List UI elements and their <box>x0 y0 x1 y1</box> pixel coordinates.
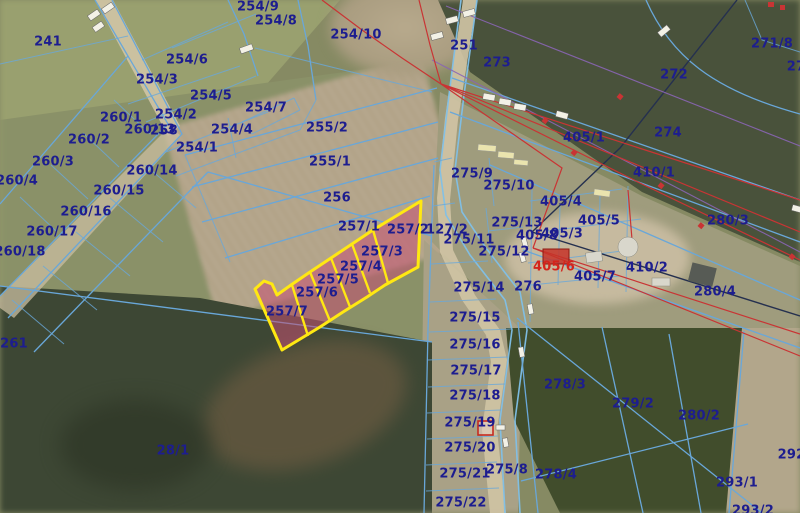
parcel-label-257-2: 257/2 <box>387 223 429 238</box>
parcel-label-280-2: 280/2 <box>678 409 720 424</box>
parcel-label-258: 258 <box>150 124 178 139</box>
parcel-label-279-2: 279/2 <box>612 397 654 412</box>
parcel-label-410-1: 410/1 <box>633 166 675 181</box>
parcel-label-254-3: 254/3 <box>136 73 178 88</box>
parcel-label-260-16: 260/16 <box>60 205 111 220</box>
parcel-label-275-15: 275/15 <box>449 311 500 326</box>
parcel-label-405-4: 405/4 <box>540 195 582 210</box>
parcel-label-254-6: 254/6 <box>166 53 208 68</box>
parcel-label-257-1: 257/1 <box>338 220 380 235</box>
parcel-label-275-12: 275/12 <box>478 245 529 260</box>
parcel-label-292-: 292/ <box>778 448 800 463</box>
parcel-label-254-8: 254/8 <box>255 14 297 29</box>
parcel-label-275-17: 275/17 <box>450 364 501 379</box>
parcel-label-275-20: 275/20 <box>444 441 495 456</box>
parcel-label-275-14: 275/14 <box>453 281 504 296</box>
parcel-label-275-22: 275/22 <box>435 496 486 511</box>
map-canvas[interactable]: 241254/9254/8254/10251273271/827272254/6… <box>0 0 800 513</box>
parcel-label-275-8: 275/8 <box>486 463 528 478</box>
parcel-label-278-3: 278/3 <box>544 378 586 393</box>
parcel-label-276: 276 <box>514 280 542 295</box>
parcel-label-254-1: 254/1 <box>176 141 218 156</box>
parcel-label-260-18: 260/18 <box>0 245 46 260</box>
parcel-label-254-9: 254/9 <box>237 0 279 15</box>
parcel-label-273: 273 <box>483 56 511 71</box>
parcel-label-405-7: 405/7 <box>574 270 616 285</box>
parcel-label-260-14: 260/14 <box>126 164 177 179</box>
parcel-label-257-7: 257/7 <box>266 305 308 320</box>
parcel-label-405-6: 405/6 <box>533 260 575 275</box>
parcel-label-260-4: 260/4 <box>0 174 38 189</box>
parcel-label-260-3: 260/3 <box>32 155 74 170</box>
parcel-label-251: 251 <box>450 39 478 54</box>
parcel-label-280-4: 280/4 <box>694 285 736 300</box>
parcel-label-293-1: 293/1 <box>716 476 758 491</box>
parcel-label-272: 272 <box>660 68 688 83</box>
parcel-label-261: 261 <box>0 337 28 352</box>
parcel-label-254-7: 254/7 <box>245 101 287 116</box>
parcel-label-274: 274 <box>654 126 682 141</box>
parcel-label-254-2: 254/2 <box>155 108 197 123</box>
parcel-label-255-1: 255/1 <box>309 155 351 170</box>
parcel-labels-layer: 241254/9254/8254/10251273271/827272254/6… <box>0 0 800 513</box>
parcel-label-278-4: 278/4 <box>535 468 577 483</box>
parcel-label-405-5: 405/5 <box>578 214 620 229</box>
parcel-label-257-3: 257/3 <box>361 245 403 260</box>
parcel-label-260-15: 260/15 <box>93 184 144 199</box>
parcel-label-260-17: 260/17 <box>26 225 77 240</box>
parcel-label-27: 27 <box>787 60 800 75</box>
parcel-label-255-2: 255/2 <box>306 121 348 136</box>
parcel-label-271-8: 271/8 <box>751 37 793 52</box>
parcel-label-275-21: 275/21 <box>439 467 490 482</box>
parcel-label-275-18: 275/18 <box>449 389 500 404</box>
parcel-label-28-1: 28/1 <box>157 444 190 459</box>
parcel-label-280-3: 280/3 <box>707 214 749 229</box>
parcel-label-410-2: 410/2 <box>626 261 668 276</box>
parcel-label-254-4: 254/4 <box>211 123 253 138</box>
parcel-label-275-19: 275/19 <box>444 416 495 431</box>
parcel-label-405-1: 405/1 <box>563 131 605 146</box>
parcel-label-254-10: 254/10 <box>330 28 381 43</box>
parcel-label-275-16: 275/16 <box>449 338 500 353</box>
parcel-label-260-2: 260/2 <box>68 133 110 148</box>
parcel-label-293-2: 293/2 <box>732 504 774 513</box>
parcel-label-241: 241 <box>34 35 62 50</box>
parcel-label-256: 256 <box>323 191 351 206</box>
parcel-label-275-10: 275/10 <box>483 179 534 194</box>
parcel-label-254-5: 254/5 <box>190 89 232 104</box>
parcel-label-257-6: 257/6 <box>296 286 338 301</box>
parcel-label-405-3: 405/3 <box>541 227 583 242</box>
